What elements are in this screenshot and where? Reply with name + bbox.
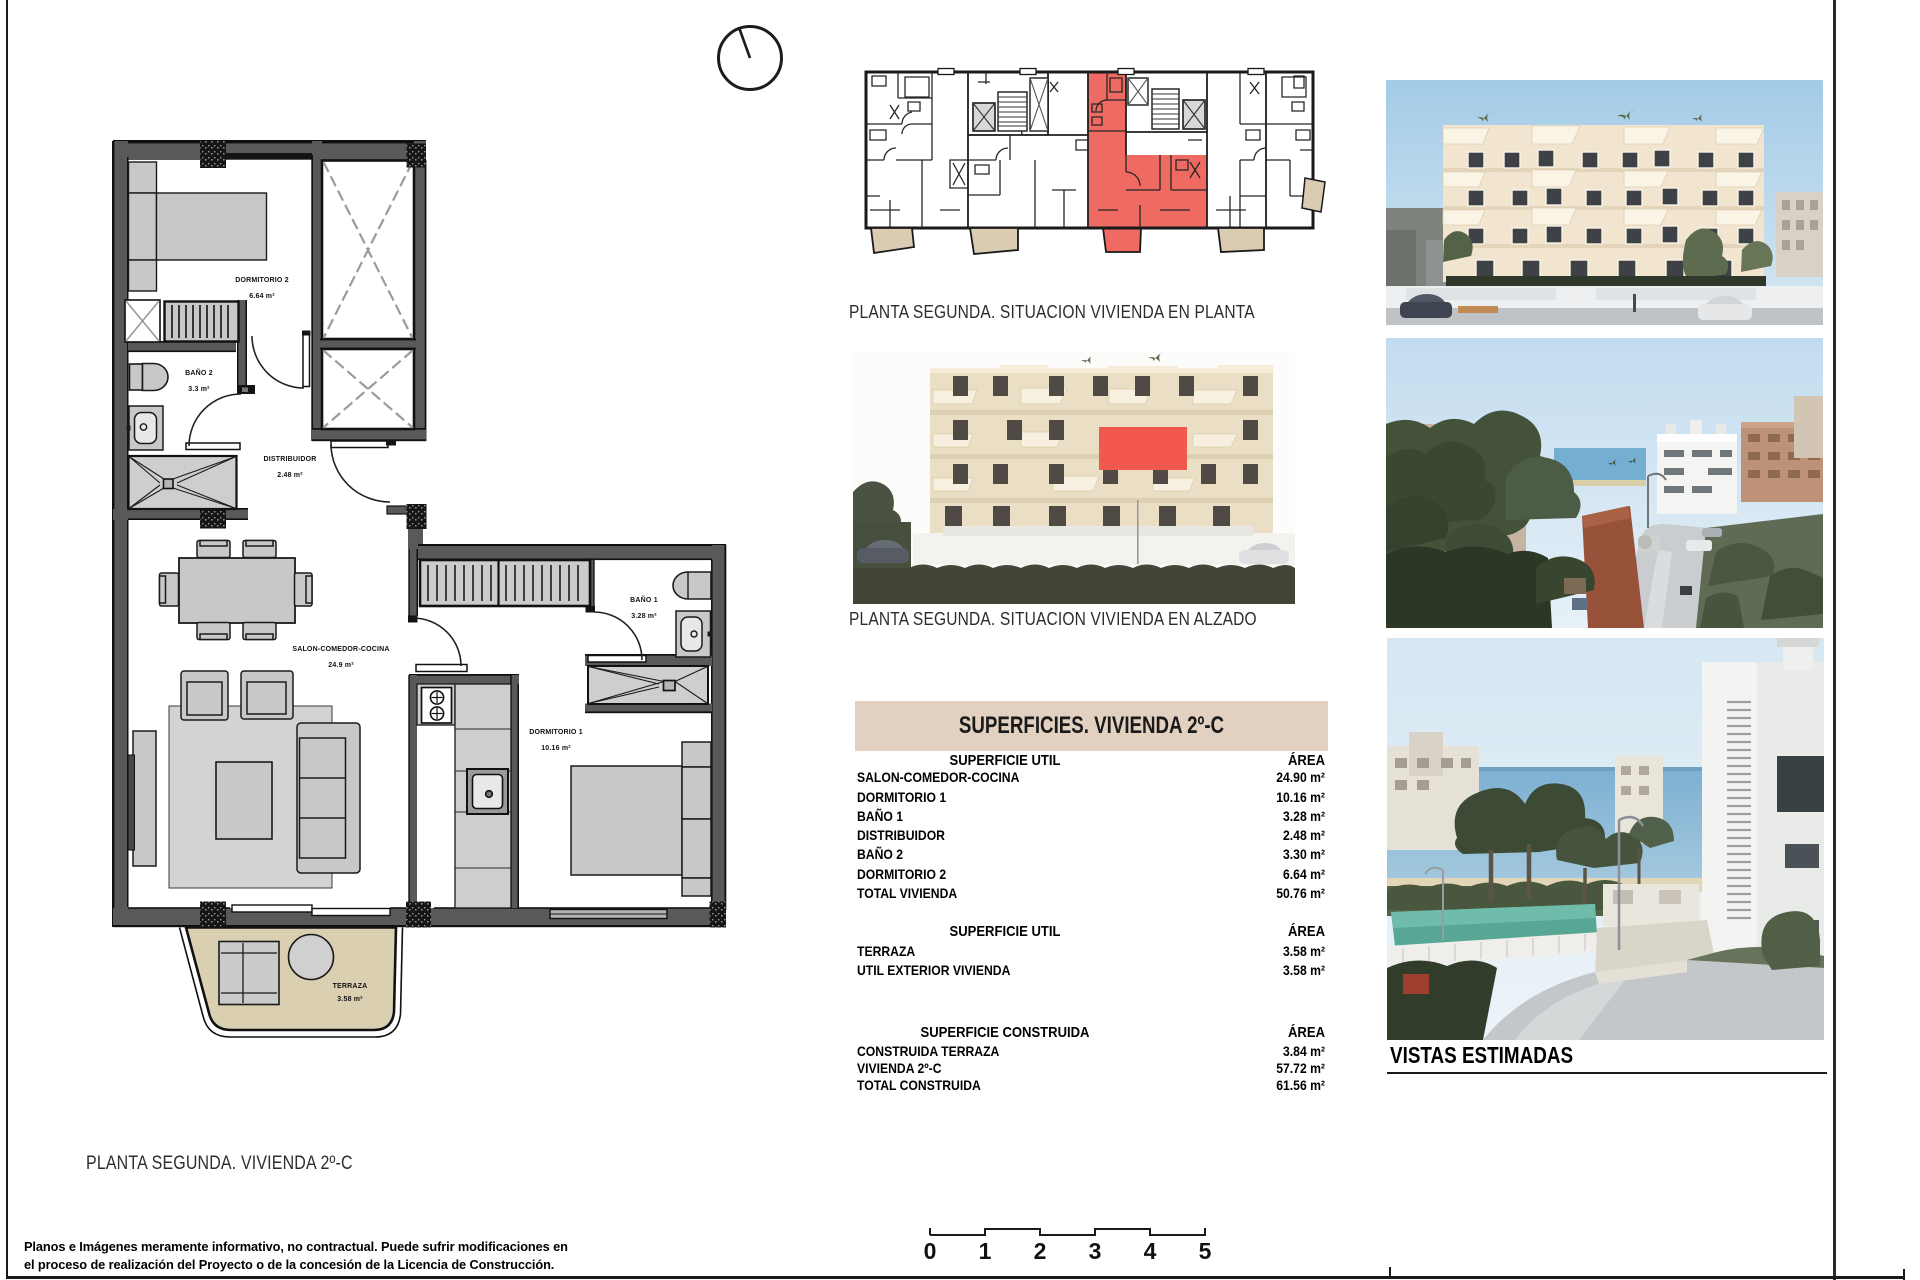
svg-text:2.48 m²: 2.48 m² — [277, 472, 303, 479]
svg-text:SALON-COMEDOR-COCINA: SALON-COMEDOR-COCINA — [292, 646, 389, 653]
svg-text:TERRAZA: TERRAZA — [333, 983, 368, 990]
svg-text:24.9 m²: 24.9 m² — [328, 662, 354, 669]
svg-text:1: 1 — [979, 1238, 992, 1264]
svg-text:BAÑO 2: BAÑO 2 — [185, 368, 213, 377]
svg-text:10.16 m²: 10.16 m² — [541, 745, 571, 752]
svg-text:DORMITORIO 2: DORMITORIO 2 — [235, 277, 289, 284]
svg-text:4: 4 — [1144, 1238, 1157, 1264]
svg-text:DISTRIBUIDOR: DISTRIBUIDOR — [264, 456, 317, 463]
svg-text:3.28 m²: 3.28 m² — [631, 613, 657, 620]
svg-text:3.3 m²: 3.3 m² — [188, 386, 210, 393]
svg-text:3: 3 — [1089, 1238, 1102, 1264]
svg-text:BAÑO 1: BAÑO 1 — [630, 595, 658, 604]
svg-text:3.58 m²: 3.58 m² — [337, 996, 363, 1003]
svg-text:0: 0 — [924, 1238, 937, 1264]
svg-text:DORMITORIO 1: DORMITORIO 1 — [529, 729, 583, 736]
svg-text:5: 5 — [1199, 1238, 1212, 1264]
svg-text:2: 2 — [1034, 1238, 1047, 1264]
svg-text:6.64 m²: 6.64 m² — [249, 293, 275, 300]
